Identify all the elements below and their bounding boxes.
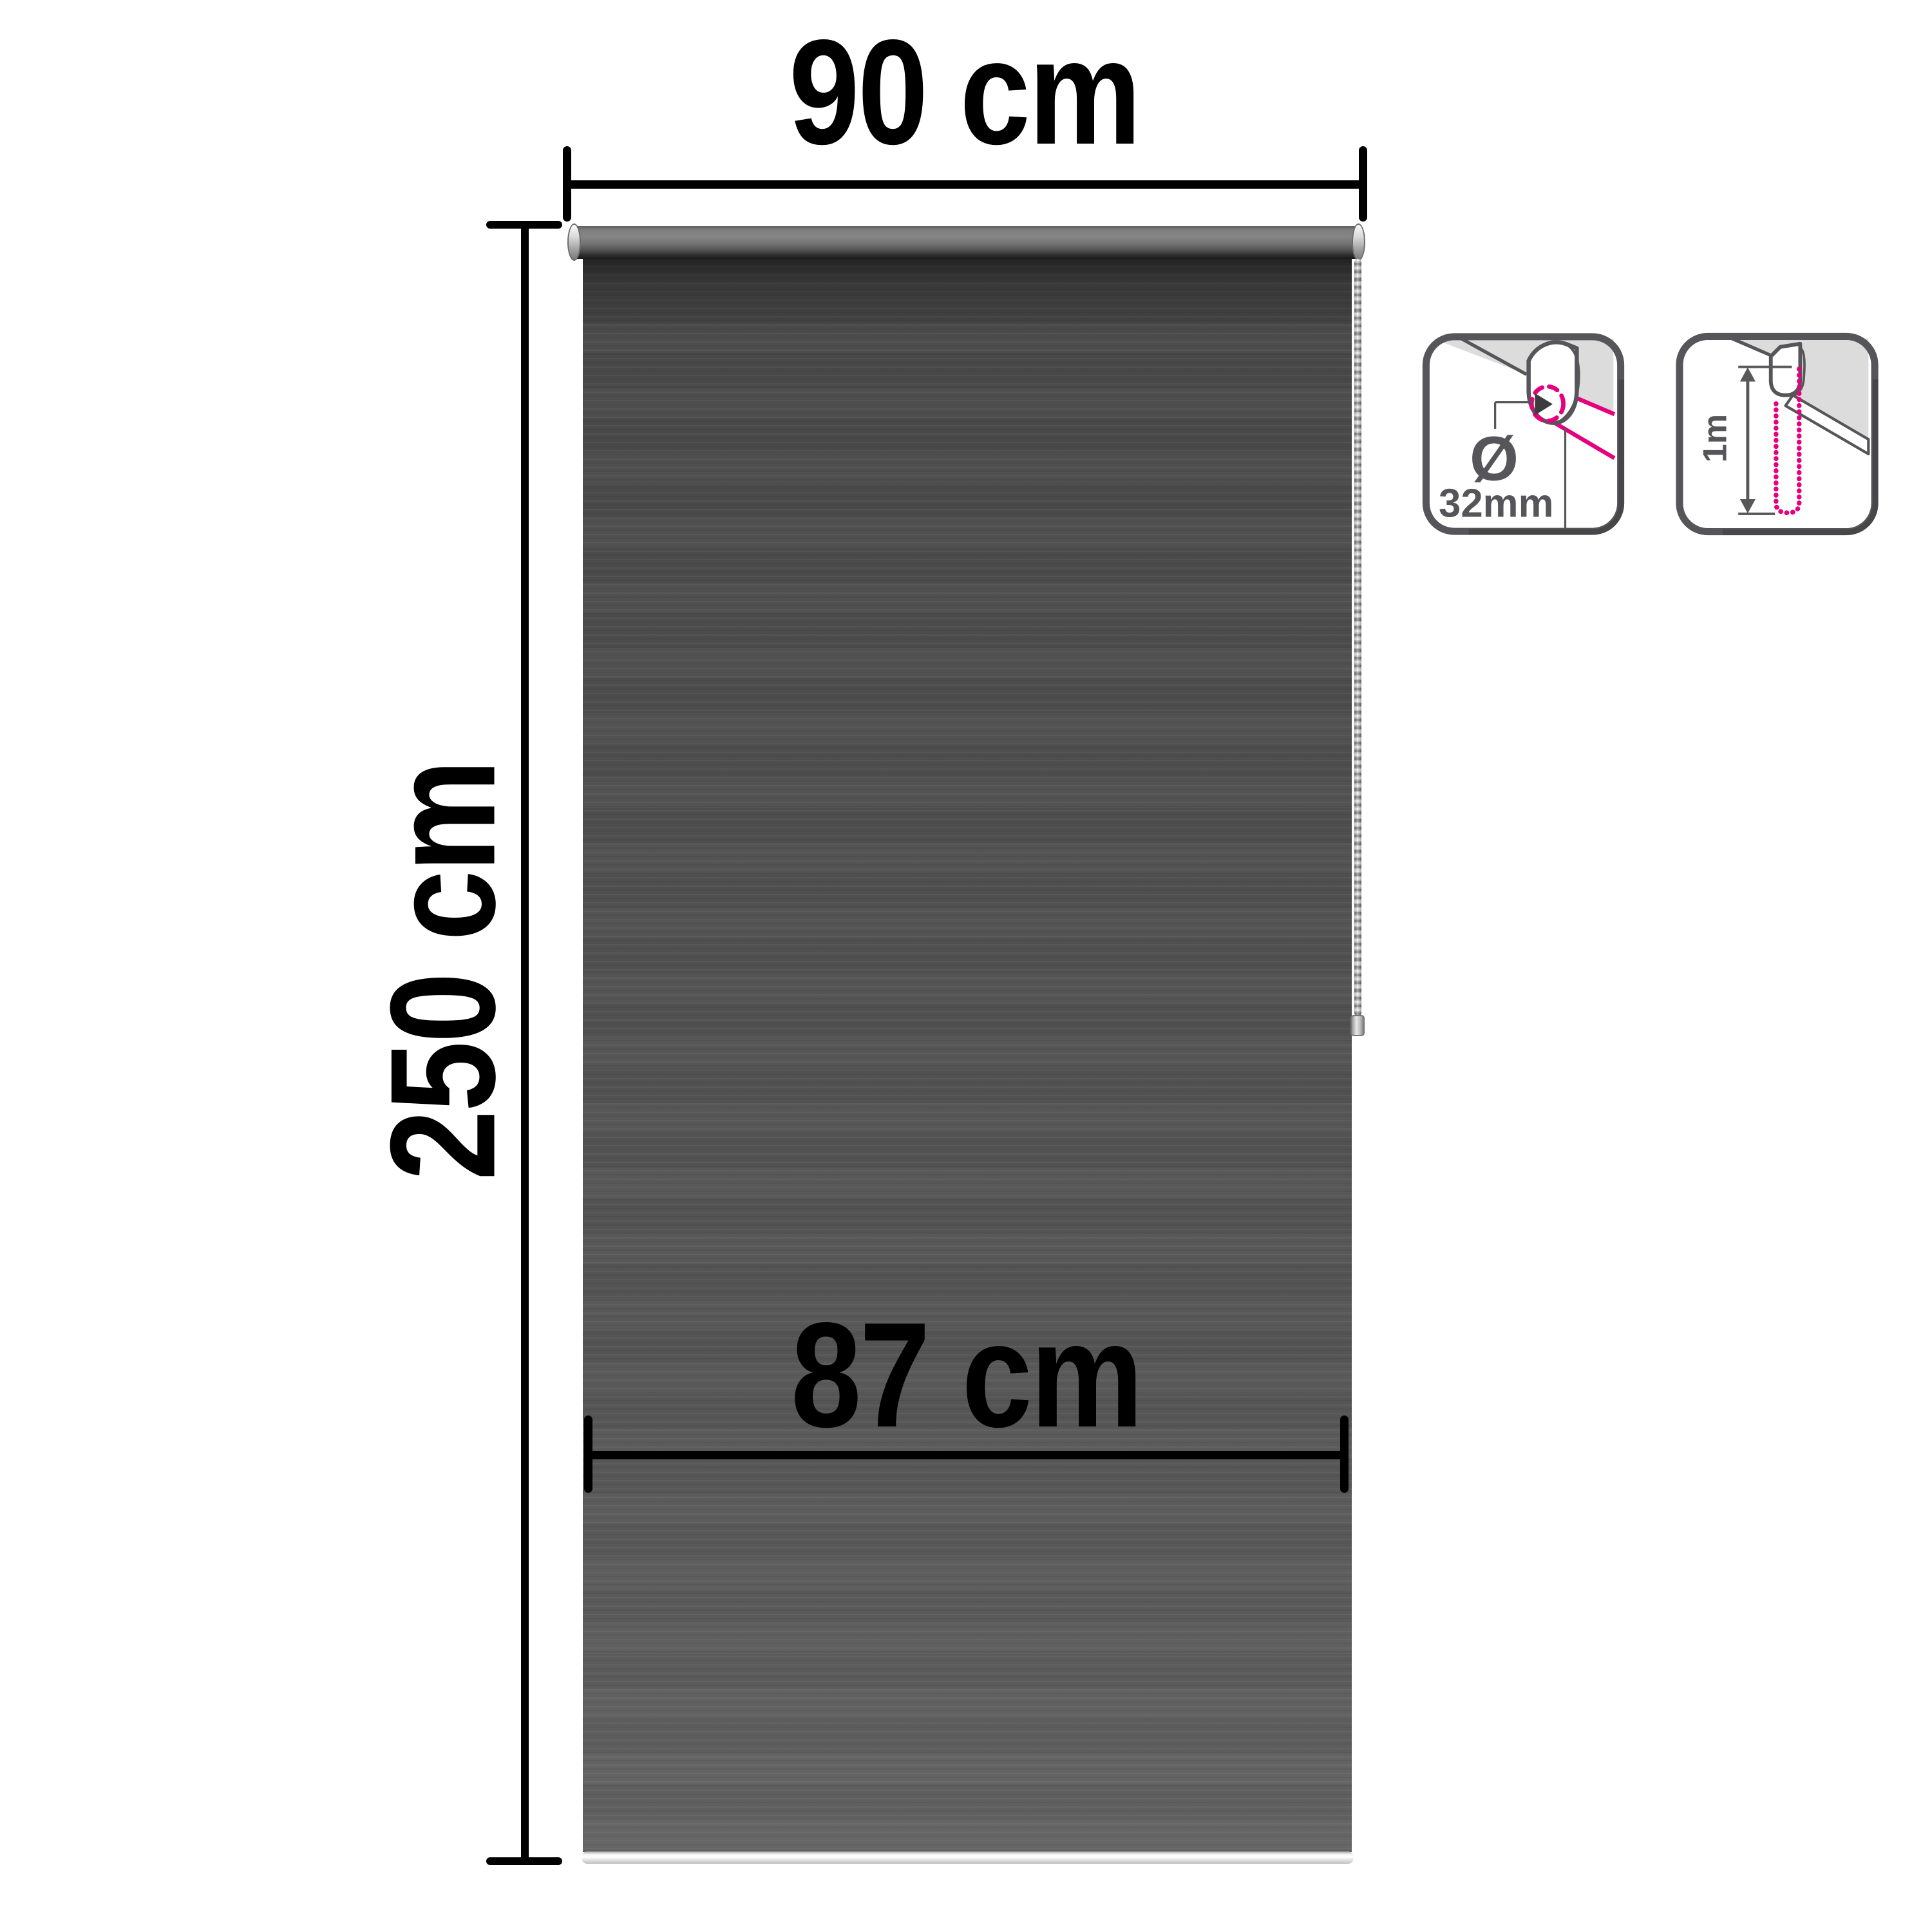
width-dimension-tick-right <box>1359 146 1367 222</box>
pull-chain <box>1354 259 1361 1016</box>
bottom-bar <box>582 1851 1354 1864</box>
fabric-width-dimension-label: 87 cm <box>705 1300 1227 1451</box>
height-dimension-tick-bottom <box>486 1857 562 1865</box>
width-dimension-line <box>564 180 1367 189</box>
height-dimension-tick-top <box>486 221 562 229</box>
fabric-width-dimension-tick-left <box>584 1416 592 1493</box>
tube-end-cap-left <box>567 223 581 261</box>
chain-connector <box>1350 1015 1365 1036</box>
fabric-top-shadow <box>583 258 1352 341</box>
width-dimension-tick-left <box>563 146 571 222</box>
tube-diameter-icon-graphic: Ø 32mm <box>1419 329 1628 539</box>
tube-diameter-icon: Ø 32mm <box>1419 329 1628 539</box>
height-dimension-label: 250 cm <box>368 771 519 1171</box>
tube-end-cap-right <box>1352 223 1365 261</box>
rolled-tube-end <box>1771 344 1801 395</box>
blind-fabric <box>583 258 1352 1852</box>
roller-blind-dimension-diagram: 90 cm 250 cm 87 cm <box>0 0 1932 1932</box>
chain-drop-length-icon-graphic: 1m <box>1672 329 1882 539</box>
fabric-width-dimension-tick-right <box>1340 1416 1349 1493</box>
chain-length-value: 1m <box>1696 414 1734 462</box>
chain-drop-length-icon: 1m <box>1672 329 1882 539</box>
width-dimension-label: 90 cm <box>703 17 1225 168</box>
diameter-value: 32mm <box>1439 481 1554 526</box>
roller-tube <box>574 226 1358 259</box>
